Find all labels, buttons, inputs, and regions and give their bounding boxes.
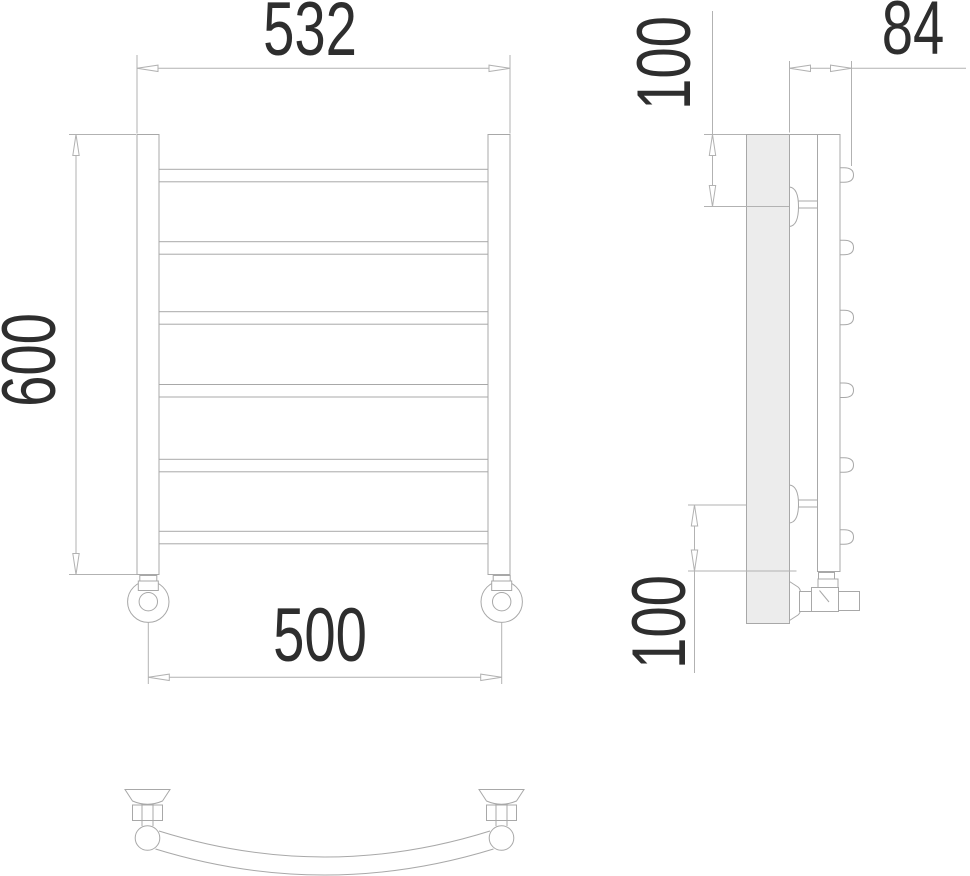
bottom-wall-bracket [790, 485, 818, 523]
dim-connection-spacing-label: 500 [273, 598, 367, 674]
top-wall-bracket [790, 187, 818, 227]
bracket-block [133, 805, 163, 821]
arrowhead-down [691, 550, 697, 571]
left-post [137, 135, 159, 575]
arrowhead-left [148, 674, 169, 680]
valve-collar [818, 579, 838, 588]
valve-nut [140, 576, 157, 582]
curved-bar-outer-edge [159, 831, 490, 857]
arrowhead-up [73, 135, 79, 156]
arrowhead-down [709, 186, 715, 207]
left-valve [128, 576, 169, 623]
valve-collar [492, 581, 512, 591]
bar-end [840, 383, 854, 398]
dim-overall-height-label: 600 [0, 313, 68, 407]
bracket-block [487, 805, 517, 821]
bar-end [840, 530, 854, 545]
arrowhead-left [790, 65, 811, 71]
arrowhead-down [73, 554, 79, 575]
arrowhead-up [709, 135, 715, 156]
dim-depth [790, 61, 967, 166]
technical-drawing-canvas: 532 600 500 84 100 100 [0, 0, 970, 876]
drawing-geometry [0, 0, 970, 876]
valve-body [812, 588, 839, 612]
rail-bar [159, 312, 488, 325]
valve-nut [493, 576, 510, 582]
arrowhead-up [691, 505, 697, 526]
valve-nut [819, 573, 835, 580]
pipe-escutcheon [790, 582, 801, 621]
curved-bar-inner-edge [156, 849, 494, 875]
wall-section [747, 135, 790, 624]
right-post [488, 135, 510, 575]
rail-bar [159, 169, 488, 182]
bracket-flange [479, 790, 524, 805]
bar-end [840, 458, 854, 473]
right-post-section [489, 826, 514, 851]
side-valve-assembly [790, 573, 860, 621]
valve-outlet [839, 592, 860, 611]
bar-end [840, 168, 854, 183]
rail-bar [159, 385, 488, 398]
dim-bottom-bracket-offset-label: 100 [622, 575, 698, 669]
dim-overall-height [69, 135, 137, 575]
bar-end [840, 310, 854, 325]
left-bracket-bottom [125, 790, 170, 827]
valve-inner-circle [493, 593, 511, 611]
front-view [128, 135, 523, 623]
bottom-view [125, 790, 524, 876]
wall-pipe [800, 592, 812, 612]
arrowhead-left [137, 65, 158, 71]
arrowhead-right [489, 65, 510, 71]
valve-inner-circle [139, 593, 157, 611]
dim-overall-width-label: 532 [263, 0, 357, 68]
valve-collar [138, 581, 158, 591]
dim-top-bracket-offset-label: 100 [627, 16, 703, 110]
left-post-section [135, 826, 160, 851]
bracket-flange [125, 790, 170, 805]
bracket-stem [797, 500, 818, 507]
right-bracket-bottom [479, 790, 524, 827]
right-valve [481, 576, 522, 623]
rail-bars [159, 169, 488, 544]
bracket-flange [790, 485, 799, 523]
bracket-stem [797, 201, 818, 208]
arrowhead-right [831, 65, 852, 71]
rail-bar [159, 459, 488, 472]
dim-depth-label: 84 [882, 0, 945, 67]
side-post [818, 135, 841, 572]
rail-bar [159, 242, 488, 255]
bracket-flange [790, 187, 799, 227]
bar-end [840, 240, 854, 255]
bar-end-profiles [840, 168, 854, 545]
side-view [747, 135, 860, 624]
arrowhead-right [481, 674, 502, 680]
rail-bar [159, 531, 488, 544]
